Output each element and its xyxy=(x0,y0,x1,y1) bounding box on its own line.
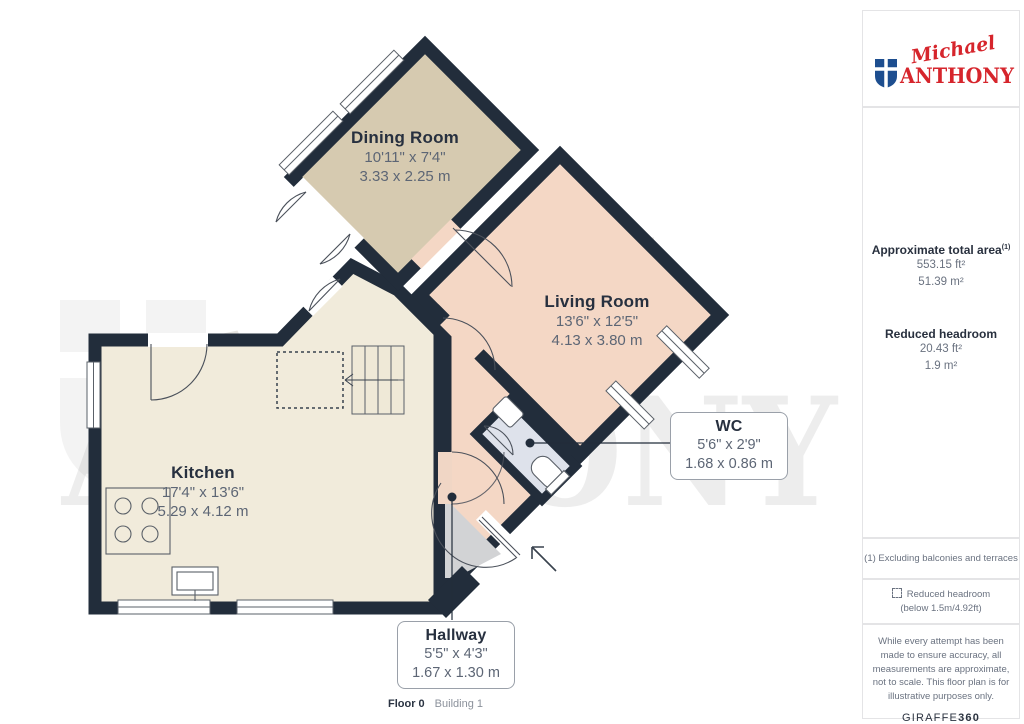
giraffe360-logo: GIRAFFE360 xyxy=(871,712,1011,724)
area-summary-box: Approximate total area(1) 553.15 ft² 51.… xyxy=(862,107,1020,538)
room-name: WC xyxy=(679,418,779,436)
floor-label: Floor 0 xyxy=(388,698,425,710)
footnote-box: (1) Excluding balconies and terraces xyxy=(862,538,1020,579)
agency-logo: Michael ANTHONY xyxy=(863,11,1019,106)
room-dim-metric: 1.68 x 0.86 m xyxy=(679,455,779,474)
building-label: Building 1 xyxy=(435,698,483,710)
room-dim-metric: 1.67 x 1.30 m xyxy=(406,664,506,683)
reduced-headroom-ft: 20.43 ft² xyxy=(863,341,1019,358)
reduced-headroom-title: Reduced headroom xyxy=(863,327,1019,341)
callout-hallway: Hallway 5'5" x 4'3" 1.67 x 1.30 m xyxy=(397,621,515,689)
floorplan-drawing: Michael ANTHONY xyxy=(0,0,862,724)
logo-main-text: ANTHONY xyxy=(899,63,1015,88)
reduced-headroom-m: 1.9 m² xyxy=(863,358,1019,375)
stove-icon xyxy=(106,488,170,554)
info-sidebar: Michael ANTHONY Approximate total area(1… xyxy=(862,0,1022,724)
floor-footer: Floor 0Building 1 xyxy=(388,698,483,710)
total-area-title: Approximate total area(1) xyxy=(863,243,1019,257)
total-area-m: 51.39 m² xyxy=(863,274,1019,291)
logo-shield-icon xyxy=(875,59,897,88)
disclaimer-text: While every attempt has been made to ens… xyxy=(871,635,1011,704)
entry-arrow-icon xyxy=(532,547,556,571)
legend-sublabel: (below 1.5m/4.92ft) xyxy=(900,603,981,614)
room-name: Hallway xyxy=(406,627,506,645)
floorplan-page: { "branding": { "logo_script": "Michael"… xyxy=(0,0,1024,724)
legend-label: Reduced headroom xyxy=(907,589,990,600)
footnote-marker: (1) xyxy=(1002,244,1011,251)
disclaimer-box: While every attempt has been made to ens… xyxy=(862,624,1020,719)
footnote-text: (1) Excluding balconies and terraces xyxy=(864,552,1018,566)
room-dim-imperial: 5'6" x 2'9" xyxy=(679,436,779,455)
stairs-icon xyxy=(345,346,404,414)
floorplan-canvas: Michael ANTHONY xyxy=(0,0,862,724)
total-area-ft: 553.15 ft² xyxy=(863,257,1019,274)
agency-logo-box: Michael ANTHONY xyxy=(862,10,1020,107)
legend-box: Reduced headroom (below 1.5m/4.92ft) xyxy=(862,579,1020,624)
callout-wc: WC 5'6" x 2'9" 1.68 x 0.86 m xyxy=(670,412,788,480)
room-dim-imperial: 5'5" x 4'3" xyxy=(406,645,506,664)
dashed-square-icon xyxy=(892,588,902,598)
